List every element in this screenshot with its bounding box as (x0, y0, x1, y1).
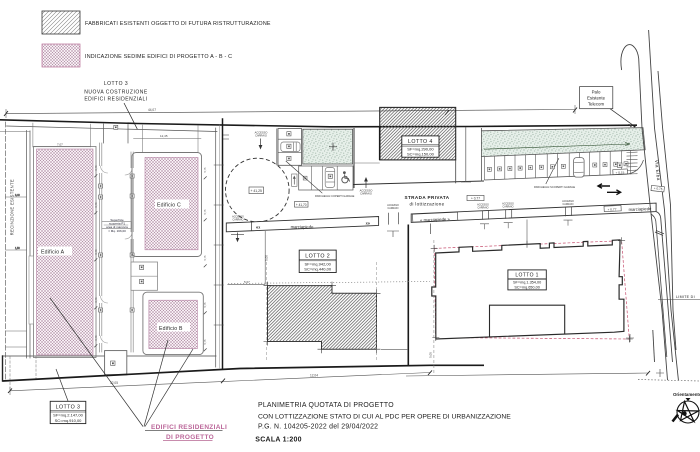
svg-text:Orientamento: Orientamento (673, 392, 700, 397)
svg-text:+ 0,77: + 0,77 (607, 207, 616, 211)
svg-text:Esistente: Esistente (587, 96, 606, 101)
svg-text:STRADA PRIVATA: STRADA PRIVATA (405, 195, 450, 200)
svg-text:CARRAIO: CARRAIO (503, 205, 514, 208)
svg-text:SC=mq.650,00: SC=mq.650,00 (514, 285, 539, 289)
svg-text:+ 0,77: + 0,77 (471, 197, 480, 201)
svg-text:3,40: 3,40 (15, 194, 20, 197)
svg-text:SC=mq.910,00: SC=mq.910,00 (55, 418, 83, 423)
svg-text:Telecom: Telecom (588, 102, 605, 107)
svg-text:SF=mq.2.147,00: SF=mq.2.147,00 (53, 413, 83, 418)
svg-text:«‹: «‹ (256, 225, 261, 231)
svg-text:Edificio C: Edificio C (157, 203, 181, 209)
svg-text:5,75: 5,75 (94, 335, 98, 341)
svg-text:44,07: 44,07 (148, 108, 156, 112)
svg-text:7,07: 7,07 (57, 143, 63, 147)
svg-text:SCALA 1:200: SCALA 1:200 (255, 437, 301, 444)
svg-text:DI PROGETTO: DI PROGETTO (166, 434, 214, 441)
svg-text:NUOVA COSTRUZIONE: NUOVA COSTRUZIONE (84, 90, 148, 96)
svg-text:5,00: 5,00 (265, 255, 269, 261)
svg-text:Palo: Palo (592, 90, 601, 95)
svg-text:marciapiede: marciapiede (628, 206, 652, 212)
svg-text:12,45: 12,45 (160, 134, 168, 138)
svg-text:LOTTO 3: LOTTO 3 (104, 81, 128, 87)
svg-text:PARCHEGGI COPERTI GARAGE: PARCHEGGI COPERTI GARAGE (315, 194, 355, 198)
svg-text:CARRAIO: CARRAIO (360, 192, 372, 196)
svg-text:SC=mq.440,00: SC=mq.440,00 (304, 267, 332, 272)
svg-text:EDIFICI RESIDENZIALI: EDIFICI RESIDENZIALI (151, 424, 227, 431)
svg-text:RECINZIONE ESISTENTE: RECINZIONE ESISTENTE (10, 179, 15, 235)
svg-text:5,75: 5,75 (94, 202, 98, 208)
svg-text:CON LOTTIZZAZIONE STATO DI CUI: CON LOTTIZZAZIONE STATO DI CUI AL PDC PE… (258, 413, 511, 420)
svg-text:5,07: 5,07 (244, 280, 250, 284)
svg-text:5,05: 5,05 (429, 352, 433, 358)
svg-text:5,75: 5,75 (203, 302, 207, 308)
svg-text:5,75: 5,75 (203, 339, 207, 345)
svg-text:5,75: 5,75 (94, 297, 98, 303)
svg-text:Edificio B: Edificio B (159, 326, 183, 332)
svg-text:PARCHEGGI SCOPERTI GARAGE: PARCHEGGI SCOPERTI GARAGE (534, 185, 575, 189)
svg-text:SC=mq.150,00: SC=mq.150,00 (407, 152, 435, 157)
svg-text:5,75: 5,75 (94, 165, 98, 171)
svg-text:+ 41,70: + 41,70 (296, 203, 307, 207)
svg-text:CARRAIO: CARRAIO (233, 218, 244, 221)
svg-text:LOTTO 2: LOTTO 2 (305, 254, 330, 260)
svg-text:P.G. N. 104205-2022 del 29/04/: P.G. N. 104205-2022 del 29/04/2022 (258, 424, 378, 431)
svg-text:di lottizzazione: di lottizzazione (410, 202, 445, 207)
svg-text:5,75: 5,75 (94, 249, 98, 255)
svg-text:FABBRICATI ESISTENTI OGGETTO D: FABBRICATI ESISTENTI OGGETTO DI FUTURA R… (85, 21, 271, 27)
svg-text:INDICAZIONE SEDIME EDIFICI DI: INDICAZIONE SEDIME EDIFICI DI PROGETTO A… (85, 54, 232, 60)
svg-text:5,75: 5,75 (203, 167, 207, 173)
svg-text:+ 0,15: + 0,15 (616, 171, 625, 175)
svg-text:CARRAIO: CARRAIO (478, 206, 489, 209)
svg-text:LOTTO 4: LOTTO 4 (408, 139, 433, 145)
svg-text:Edificio A: Edificio A (41, 250, 65, 256)
svg-text:LOTTO 1: LOTTO 1 (515, 273, 539, 279)
svg-text:CARRAIO: CARRAIO (388, 207, 399, 210)
svg-text:= Mq. 166,00: = Mq. 166,00 (108, 229, 126, 233)
svg-text:+ 41,25: + 41,25 (250, 189, 262, 193)
svg-text:SF=mq.942,00: SF=mq.942,00 (305, 261, 332, 266)
svg-text:1,50: 1,50 (15, 247, 20, 250)
svg-text:›»: ›» (366, 221, 371, 227)
svg-text:SF=mq.1.354,00: SF=mq.1.354,00 (513, 281, 541, 285)
svg-text:LOTTO 3: LOTTO 3 (56, 405, 81, 411)
svg-text:5,75: 5,75 (203, 209, 207, 215)
svg-text:CARRAIO: CARRAIO (255, 134, 267, 138)
svg-text:EDIFICI RESIDENZIALI: EDIFICI RESIDENZIALI (84, 97, 147, 103)
svg-text:5,75: 5,75 (203, 255, 207, 261)
svg-text:PLANIMETRIA QUOTATA DI PROGETT: PLANIMETRIA QUOTATA DI PROGETTO (258, 402, 394, 409)
svg-text:CARRAIO: CARRAIO (563, 203, 574, 206)
svg-text:12,04: 12,04 (310, 374, 318, 378)
svg-text:marciapiede: marciapiede (291, 224, 314, 229)
svg-text:LIMITE DI: LIMITE DI (676, 295, 695, 299)
